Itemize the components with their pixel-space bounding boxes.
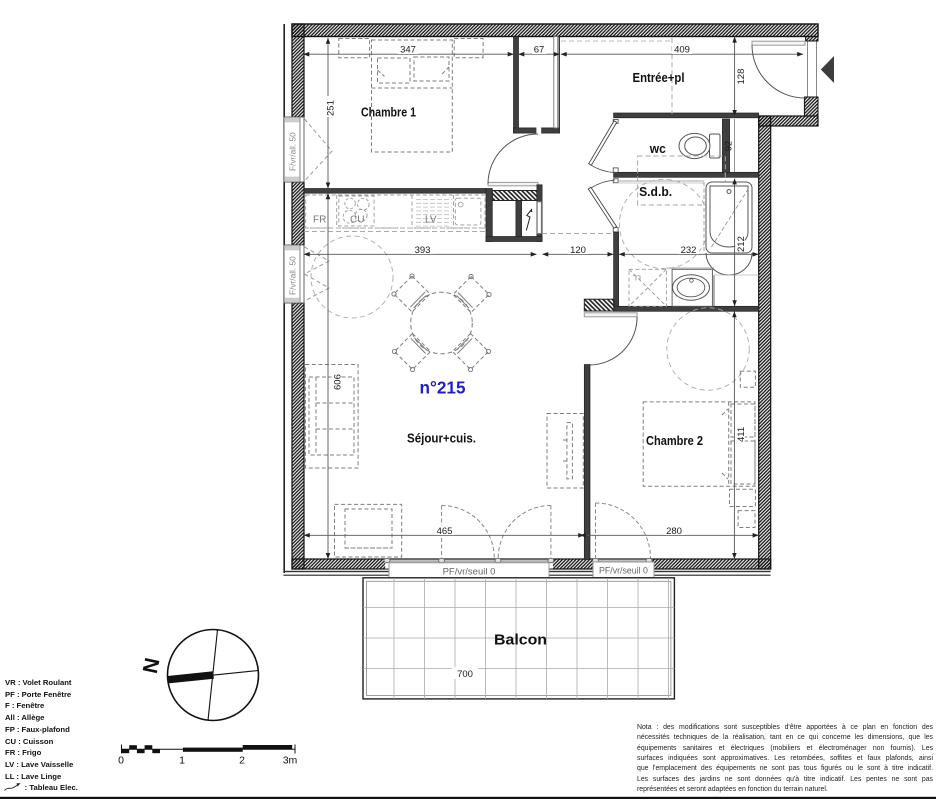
svg-text:FR: FR <box>313 215 326 226</box>
svg-text:700: 700 <box>457 669 473 680</box>
svg-text:120: 120 <box>570 245 586 256</box>
svg-text:wc: wc <box>649 141 666 156</box>
svg-text:Chambre 2: Chambre 2 <box>646 433 703 448</box>
svg-text:347: 347 <box>400 45 416 56</box>
svg-text:393: 393 <box>415 245 431 256</box>
svg-text:92: 92 <box>724 141 734 151</box>
svg-text:409: 409 <box>674 45 690 56</box>
svg-text:Chambre 1: Chambre 1 <box>361 105 416 120</box>
svg-text:1: 1 <box>179 755 185 767</box>
svg-text:Entrée+pl: Entrée+pl <box>633 70 685 85</box>
svg-text:F/vr/all. 50: F/vr/all. 50 <box>288 256 298 295</box>
svg-text:LL: LL <box>633 274 641 283</box>
svg-text:Balcon: Balcon <box>494 632 547 649</box>
svg-text:2: 2 <box>239 755 245 767</box>
svg-text:606: 606 <box>333 374 344 390</box>
svg-text:Séjour+cuis.: Séjour+cuis. <box>407 431 476 446</box>
svg-text:n°215: n°215 <box>420 378 466 398</box>
svg-text:PF/vr/seuil 0: PF/vr/seuil 0 <box>443 566 496 577</box>
svg-text:212: 212 <box>736 236 747 252</box>
svg-text:280: 280 <box>666 526 682 537</box>
svg-text:CU: CU <box>350 215 364 226</box>
svg-text:128: 128 <box>736 69 747 85</box>
svg-text:232: 232 <box>681 245 697 256</box>
svg-text:LV: LV <box>425 215 437 226</box>
svg-text:465: 465 <box>437 526 453 537</box>
svg-text:PF/vr/seuil 0: PF/vr/seuil 0 <box>599 566 648 576</box>
svg-text:251: 251 <box>326 100 337 116</box>
svg-text:3m: 3m <box>283 755 298 767</box>
svg-text:411: 411 <box>736 427 747 442</box>
svg-text:67: 67 <box>534 45 545 56</box>
svg-text:F/vr/all. 50: F/vr/all. 50 <box>288 132 298 171</box>
svg-text:0: 0 <box>118 755 124 767</box>
svg-text:S.d.b.: S.d.b. <box>639 184 672 199</box>
